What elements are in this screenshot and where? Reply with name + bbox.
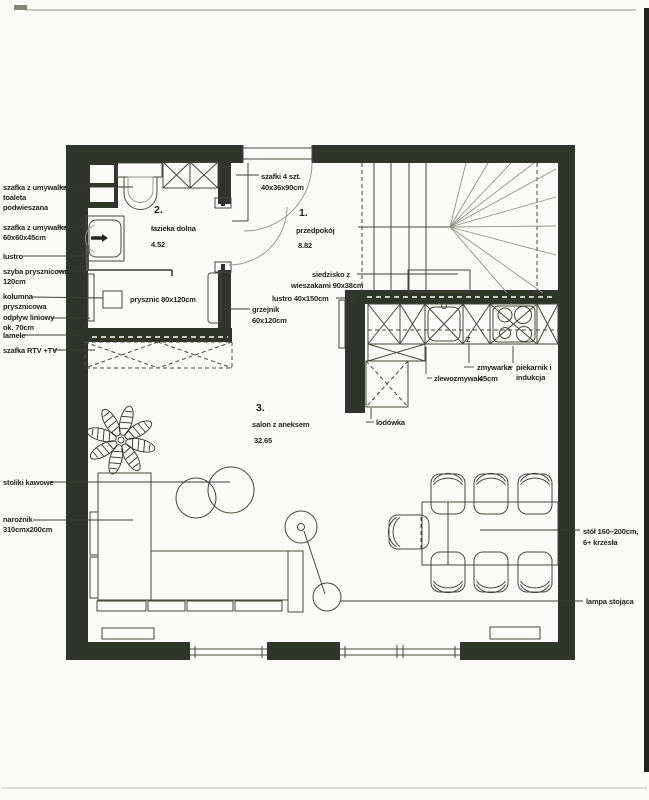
dining-set bbox=[388, 473, 558, 592]
label-toilet-2: toaleta bbox=[3, 193, 27, 202]
label-shower-glass-2: 120cm bbox=[3, 277, 26, 286]
exterior-walls bbox=[66, 145, 575, 660]
label-lamele: lamele bbox=[3, 331, 25, 340]
label-table-2: 6+ krzesła bbox=[583, 538, 619, 547]
label-tv-cabinet: szafka RTV +TV bbox=[3, 346, 57, 355]
leader-lines bbox=[23, 175, 583, 601]
wall-bottom-middle bbox=[267, 642, 340, 660]
scan-right-edge-bar bbox=[644, 8, 649, 772]
dining-chair bbox=[474, 552, 508, 593]
toilet-bowl bbox=[124, 177, 157, 210]
wall-bottom-left bbox=[66, 642, 190, 660]
label-sofa-1: narożnik bbox=[3, 515, 34, 524]
annotation-cabinets-1: szafki 4 szt. bbox=[261, 172, 301, 181]
annotation-sink: zlewozmywak bbox=[434, 374, 483, 383]
label-washbasin-2: 60x60x45cm bbox=[3, 233, 46, 242]
corner-inset-top bbox=[90, 165, 114, 183]
leader-shower-column bbox=[31, 297, 103, 298]
room-1-area: 8.82 bbox=[298, 241, 312, 250]
stair-winders bbox=[450, 163, 556, 293]
annotation-fridge: lodówka bbox=[376, 418, 406, 427]
annotation-radiator-1: grzejnik bbox=[252, 305, 280, 314]
label-column-1: kolumna bbox=[3, 292, 34, 301]
dining-chair bbox=[518, 552, 552, 593]
room-1-name: przedpokój bbox=[296, 226, 335, 235]
label-mirror: lustro bbox=[3, 252, 24, 261]
wall-bottom-right bbox=[460, 642, 575, 660]
annotation-hall-mirror: lustro 40x150cm bbox=[272, 294, 329, 303]
label-shower-glass-1: szyba prysznicowa bbox=[3, 267, 69, 276]
room-2-name: łazieka dolna bbox=[151, 224, 197, 233]
tv-cabinet bbox=[85, 342, 232, 368]
label-sofa-2: 310cmx200cm bbox=[3, 525, 53, 534]
annotation-z-mark: Z bbox=[466, 337, 471, 344]
floor-lamp bbox=[285, 511, 341, 611]
plant bbox=[86, 405, 157, 476]
annotation-bench-1: siedzisko z bbox=[312, 270, 350, 279]
scan-corner-mark bbox=[14, 5, 27, 10]
wall-left bbox=[66, 145, 88, 660]
annotation-oven-2: indukcja bbox=[516, 373, 546, 382]
annotation-bench-2: wieszakami 90x38cm bbox=[290, 281, 364, 290]
bathroom-door-jamb-bottom-tick bbox=[221, 264, 225, 270]
dining-table bbox=[422, 502, 558, 565]
corner-inset-bottom bbox=[90, 187, 114, 202]
label-lamp: lampa stojąca bbox=[586, 597, 635, 606]
label-coffee-tables: stoliki kawowe bbox=[3, 478, 53, 487]
label-column-2: prysznicowa bbox=[3, 302, 47, 311]
living-room bbox=[85, 342, 540, 639]
annotation-cabinets-2: 40x36x90cm bbox=[261, 183, 304, 192]
label-column-3: odpływ liniowy bbox=[3, 313, 55, 322]
scan-artifacts bbox=[2, 5, 649, 788]
stair-treads bbox=[358, 163, 450, 293]
toilet-bowl-inner bbox=[128, 177, 153, 203]
coffee-table-small bbox=[176, 478, 216, 518]
annotation-dishwasher-size: 45cm bbox=[479, 374, 498, 383]
wall-top-left bbox=[66, 145, 243, 163]
wall-right bbox=[558, 145, 575, 660]
bathroom-door-arc bbox=[229, 207, 287, 265]
annotation-radiator-2: 60x120cm bbox=[252, 316, 287, 325]
bathroom-right-wall-lower bbox=[218, 270, 231, 330]
dining-chair bbox=[518, 473, 552, 514]
dining-chair-head bbox=[388, 515, 429, 549]
bathroom-bottom-wall bbox=[88, 328, 232, 342]
floorplan-scan: szafka z umywalką toaleta podwieszana sz… bbox=[0, 0, 649, 800]
annotation-shower: prysznic 80x120cm bbox=[130, 295, 196, 304]
wall-top-right bbox=[312, 145, 575, 163]
room-3-number: 3. bbox=[256, 402, 265, 414]
corner-sofa bbox=[90, 473, 303, 612]
kitchen bbox=[339, 300, 558, 407]
toilet-cistern bbox=[117, 163, 162, 177]
window-right bbox=[340, 645, 460, 658]
hall-mirror bbox=[339, 300, 345, 348]
annotation-oven-1: piekarnik i bbox=[516, 363, 552, 372]
dining-chair bbox=[474, 473, 508, 514]
kitchen-left-wall bbox=[345, 290, 365, 413]
room-1-number: 1. bbox=[299, 207, 308, 219]
window-left bbox=[190, 646, 267, 658]
cooktop-burners bbox=[498, 307, 532, 342]
room-2-number: 2. bbox=[154, 204, 163, 216]
room-3-name: salon z aneksem bbox=[252, 420, 310, 429]
windowsill-left bbox=[102, 628, 154, 639]
staircase bbox=[358, 163, 556, 293]
label-toilet-3: podwieszana bbox=[3, 203, 49, 212]
bathroom-mirror bbox=[86, 245, 89, 271]
label-toilet-1: szafka z umywalką bbox=[3, 183, 68, 192]
label-washbasin-1: szafka z umywalką bbox=[3, 223, 68, 232]
bathroom-door-jamb-top-tick bbox=[221, 200, 225, 206]
windowsill-right bbox=[490, 627, 540, 639]
annotation-dishwasher: zmywarka bbox=[477, 363, 513, 372]
hall-bench bbox=[408, 270, 470, 292]
room-2-area: 4.52 bbox=[151, 240, 165, 249]
label-table-1: stół 160–200cm, bbox=[583, 527, 638, 536]
washbasin-tap-arrow bbox=[102, 234, 108, 242]
room-3-area: 32.65 bbox=[254, 436, 272, 445]
coffee-table-large bbox=[208, 467, 254, 513]
shower-column bbox=[103, 291, 122, 308]
